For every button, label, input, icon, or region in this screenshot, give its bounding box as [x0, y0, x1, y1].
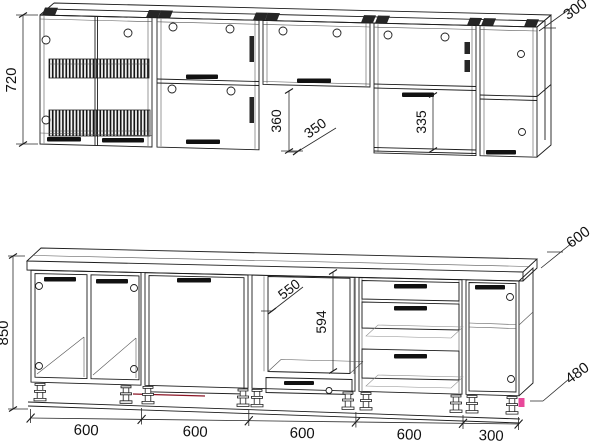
lift-hinge-hardware [465, 42, 471, 54]
drawing-canvas: 720 300 360 350 335 [0, 0, 600, 447]
dim-base-height: 850 [0, 320, 12, 345]
dim-counter-depth: 600 [563, 223, 593, 251]
drawer-handle [394, 284, 427, 289]
drawer-front [362, 349, 459, 380]
flip-door-handle [297, 79, 331, 84]
door-handle [96, 279, 128, 284]
flip-door-handle [402, 93, 434, 98]
base-cabinet-doors [31, 270, 141, 385]
door-left [35, 274, 87, 379]
flip-door-handle [186, 75, 218, 80]
flip-door-handle [186, 140, 220, 145]
bottom-shelf [374, 148, 476, 154]
wall-cabinet-flip-double [157, 18, 259, 150]
door-handle [44, 277, 76, 282]
dim-width-2: 600 [182, 423, 208, 441]
door-handle [475, 285, 505, 290]
drawer-handle [394, 306, 427, 311]
dim-plinth-depth: 480 [562, 359, 592, 387]
dim-flip-height: 360 [268, 109, 284, 133]
dim-oven-width: 550 [275, 275, 303, 302]
dim-flip-depth: 350 [301, 114, 329, 141]
dim-width-3: 600 [289, 425, 315, 443]
plate-rack-lower [49, 110, 150, 136]
dim-open-height: 335 [413, 110, 429, 134]
pink-accent-mark [519, 398, 525, 407]
dim-width-1: 600 [73, 422, 99, 440]
hinge-icon [42, 36, 50, 44]
dim-wall-height: 720 [3, 67, 20, 92]
dim-width-5: 300 [478, 427, 504, 445]
door-handle [177, 278, 211, 283]
plate-rack-upper [49, 59, 149, 78]
base-cabinet-narrow [466, 268, 533, 407]
hinge-icon [507, 294, 514, 301]
dim-width-4: 600 [396, 426, 422, 444]
wall-cabinet-dish-rack [40, 15, 152, 147]
base-cabinet-full-door [133, 273, 248, 396]
lift-hinge-hardware [250, 97, 255, 123]
lift-hinge-hardware [465, 60, 471, 72]
hinge-icon [131, 366, 138, 373]
hinge-icon [508, 376, 515, 383]
dim-wall-depth: 300 [560, 0, 590, 24]
door-handle [47, 137, 81, 142]
hinge-icon [131, 285, 138, 292]
shelf [480, 85, 551, 101]
side-panel [519, 268, 533, 396]
wall-cabinet-run: 720 300 360 350 335 [3, 0, 590, 157]
rail-bar [486, 150, 516, 155]
wall-cabinet-open-narrow [480, 26, 551, 158]
door-handle [102, 138, 144, 143]
lift-hinge-hardware [250, 36, 255, 62]
shelf-pin-icon [518, 51, 525, 58]
shelf-pin-icon [519, 129, 526, 136]
floor-line [28, 402, 520, 423]
mid-rail [157, 79, 259, 86]
drawer-handle [284, 381, 314, 385]
cabinet-drawing: 720 300 360 350 335 [0, 0, 600, 447]
drawer-front [362, 281, 459, 302]
base-cabinet-oven-housing [252, 275, 363, 394]
knob-icon [326, 388, 332, 394]
mid-rail [374, 84, 476, 91]
wall-cabinet-flip-open [374, 23, 476, 156]
base-cabinet-drawers [359, 278, 463, 395]
hinge-icon [36, 363, 43, 370]
hinge-icon [36, 283, 43, 290]
drawer-handle [394, 354, 427, 359]
appliance-door [149, 276, 244, 394]
drawer-front [266, 378, 352, 395]
dim-oven-height: 594 [313, 310, 329, 334]
base-cabinet-run: 850 550 594 600 480 600 600 600 600 300 [0, 223, 593, 445]
